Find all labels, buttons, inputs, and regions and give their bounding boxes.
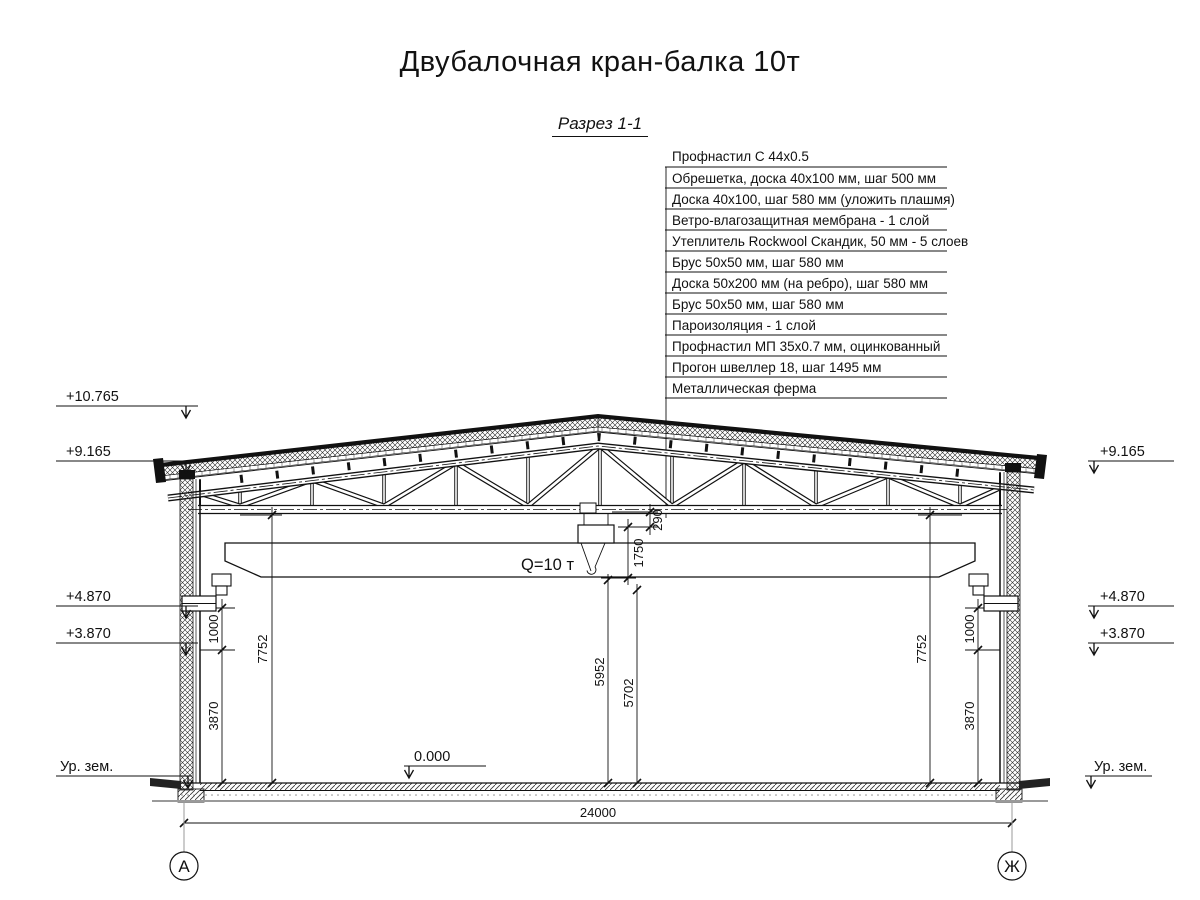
elev-rail-left-label: +4.870	[66, 589, 111, 605]
roof-layer-11: Прогон швеллер 18, шаг 1495 мм	[672, 360, 881, 375]
roof-insulation-right	[598, 418, 1040, 469]
left-end-truck	[212, 574, 231, 586]
floor-underlay	[180, 791, 1020, 801]
axis-right-label: Ж	[1004, 857, 1020, 876]
dim-290-label: 290	[650, 509, 665, 531]
right-wheel	[973, 586, 984, 595]
crane-bridge: Q=10 т	[182, 514, 1018, 611]
roof-layer-5: Утеплитель Rockwool Скандик, 50 мм - 5 с…	[672, 234, 968, 249]
right-blind-area	[1019, 778, 1050, 789]
elev-eave-right-label: +9.165	[1100, 444, 1145, 460]
dim-1000-left-label: 1000	[206, 615, 221, 644]
elev-console-left-label: +3.870	[66, 626, 111, 642]
elev-eave-left-label: +9.165	[66, 444, 111, 460]
roof-endcap-left	[153, 458, 166, 483]
dim-1000-right-label: 1000	[962, 615, 977, 644]
roof-layer-1: Профнастил С 44х0.5	[672, 149, 809, 164]
ground-level-right-label: Ур. зем.	[1094, 759, 1147, 775]
left-wall-panel	[180, 479, 193, 790]
trolley-hangers	[584, 514, 608, 525]
ground-level-left-label: Ур. зем.	[60, 759, 113, 775]
roof-layer-8: Брус 50х50 мм, шаг 580 мм	[672, 297, 844, 312]
drawing-canvas: Двубалочная кран-балка 10т Разрез 1-1 Пр…	[0, 0, 1200, 900]
dim-3870-right-label: 3870	[962, 702, 977, 731]
dim-1750-label: 1750	[631, 539, 646, 568]
roof-layer-2: Обрешетка, доска 40х100 мм, шаг 500 мм	[672, 171, 936, 186]
dim-span-label: 24000	[580, 805, 616, 820]
floor-level-label: 0.000	[414, 749, 450, 765]
elev-ridge-label: +10.765	[66, 389, 119, 405]
floor-ground	[150, 778, 1050, 802]
section-drawing: Профнастил С 44х0.5 Обрешетка, доска 40х…	[0, 0, 1200, 900]
crane-capacity-label: Q=10 т	[521, 556, 574, 574]
dim-5952-label: 5952	[592, 658, 607, 687]
right-end-truck	[969, 574, 988, 586]
dim-7752-right-label: 7752	[914, 635, 929, 664]
dim-7752-left-label: 7752	[255, 635, 270, 664]
left-blind-area	[150, 778, 181, 789]
dim-5702-label: 5702	[621, 679, 636, 708]
roof-layer-6: Брус 50х50 мм, шаг 580 мм	[672, 255, 844, 270]
roof-layer-12: Металлическая ферма	[672, 381, 817, 396]
hoist-trolley	[578, 525, 614, 543]
roof-layer-10: Профнастил МП 35х0.7 мм, оцинкованный	[672, 339, 940, 354]
roof-layer-3: Доска 40х100, шаг 580 мм (уложить плашмя…	[672, 192, 955, 207]
roof-sheet-left	[160, 414, 598, 467]
roof-layer-4: Ветро-влагозащитная мембрана - 1 слой	[672, 213, 929, 228]
chord-center-plate	[580, 503, 596, 513]
crane-girder	[225, 543, 975, 577]
right-wall-panel	[1007, 472, 1020, 790]
dim-3870-left-label: 3870	[206, 702, 221, 731]
roof-layer-7: Доска 50х200 мм (на ребро), шаг 580 мм	[672, 276, 928, 291]
right-wall-cap	[1005, 463, 1021, 472]
floor-screed	[200, 784, 1000, 791]
axis-left-label: А	[178, 857, 190, 876]
roof-insulation-left	[160, 418, 598, 476]
left-wheel	[216, 586, 227, 595]
roof-layer-9: Пароизоляция - 1 слой	[672, 318, 816, 333]
elev-console-right-label: +3.870	[1100, 626, 1145, 642]
elev-rail-right-label: +4.870	[1100, 589, 1145, 605]
